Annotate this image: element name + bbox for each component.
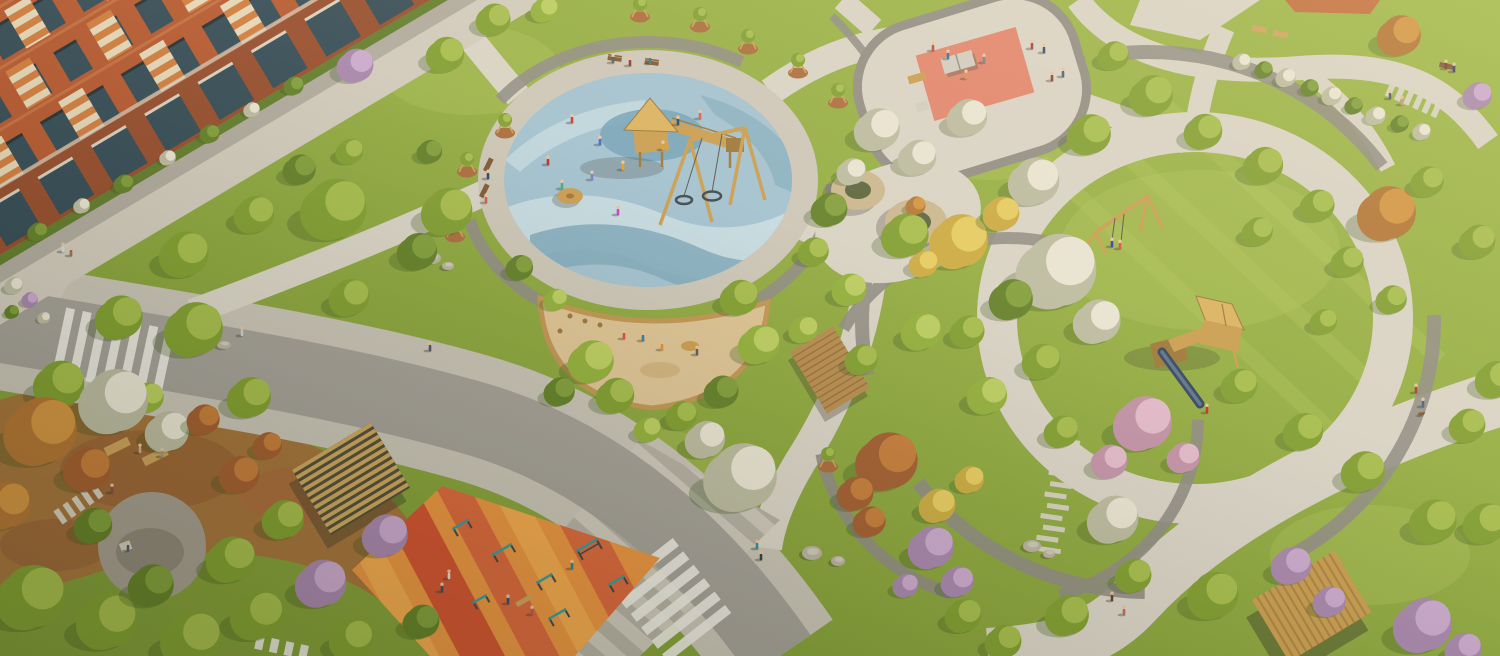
person-body (965, 73, 968, 80)
tree-canopy-highlight (1415, 600, 1450, 635)
tree-canopy-highlight (1397, 116, 1408, 127)
tree-canopy-highlight (999, 626, 1021, 648)
person-body (756, 543, 759, 550)
tree-canopy-highlight (1036, 345, 1059, 368)
person-body (1422, 401, 1425, 408)
tree-canopy-highlight (734, 281, 757, 304)
tree-canopy-highlight (1298, 414, 1322, 438)
person-head (1030, 40, 1033, 43)
person-head (1414, 384, 1417, 387)
mulch-ring (495, 128, 515, 139)
tree-canopy-highlight (1387, 286, 1406, 305)
tree-canopy-highlight (800, 317, 818, 335)
mulch-ring (738, 44, 758, 55)
tree-canopy-highlight (644, 418, 661, 435)
tree-canopy-highlight (1057, 417, 1078, 438)
tree-canopy-highlight (1109, 42, 1128, 61)
person-head (447, 570, 450, 573)
person-body (507, 598, 510, 605)
person-head (126, 542, 129, 545)
person-head (695, 346, 698, 349)
tree-canopy-highlight (857, 346, 877, 366)
person-head (641, 332, 644, 335)
person-body (161, 451, 164, 458)
person-body (62, 246, 65, 253)
person-body (571, 563, 574, 570)
person-head (622, 330, 625, 333)
tree-canopy-highlight (1373, 107, 1385, 119)
person-head (1122, 606, 1125, 609)
person-body (612, 57, 615, 64)
mulch-ring (818, 462, 838, 473)
tree-canopy-highlight (1179, 444, 1199, 464)
person-body (649, 58, 652, 65)
tree-canopy-highlight (113, 297, 142, 326)
tree-canopy-highlight (851, 478, 873, 500)
person-body (1031, 43, 1034, 50)
person-head (946, 50, 949, 53)
tree-canopy-highlight (250, 103, 260, 113)
young-canopy-highlight (746, 30, 754, 38)
tree-canopy-highlight (953, 568, 973, 588)
person-head (570, 560, 573, 563)
tree-canopy-highlight (178, 233, 208, 263)
mulch-ring (457, 167, 477, 178)
person-head (484, 194, 487, 197)
tree-canopy-highlight (1258, 148, 1282, 172)
tree-canopy-highlight (42, 312, 50, 320)
person-head (661, 141, 664, 144)
person-head (755, 540, 758, 543)
person-body (139, 447, 142, 454)
tree-canopy-highlight (183, 614, 219, 650)
person-head (546, 156, 549, 159)
person-body (1062, 71, 1065, 78)
person-head (611, 54, 614, 57)
tree-canopy-highlight (809, 238, 828, 257)
boulder-highlight (445, 263, 452, 267)
boulder-highlight (1046, 551, 1053, 555)
person-body (429, 345, 432, 352)
person-body (1123, 609, 1126, 616)
tree-canopy-highlight (1062, 597, 1088, 623)
person-head (486, 170, 489, 173)
tree-canopy-highlight (913, 197, 925, 209)
person-body (622, 164, 625, 171)
person-body (617, 209, 620, 216)
tree-canopy-highlight (291, 77, 303, 89)
person-body (70, 250, 73, 257)
tree-canopy-highlight (80, 199, 90, 209)
person-body (1119, 243, 1122, 250)
tree-canopy-highlight (1105, 446, 1127, 468)
tree-canopy-highlight (22, 568, 64, 610)
person-body (642, 335, 645, 342)
tree-canopy-highlight (11, 278, 22, 289)
person-head (590, 171, 593, 174)
tree-canopy-highlight (754, 327, 779, 352)
person-head (1110, 592, 1113, 595)
tree-canopy-highlight (1313, 191, 1334, 212)
mulch-ring (828, 98, 848, 109)
tree-canopy-highlight (552, 290, 566, 304)
person-body (571, 117, 574, 124)
person-head (570, 114, 573, 117)
person-body (599, 139, 602, 146)
person-head (759, 551, 762, 554)
tree-canopy-highlight (489, 5, 510, 26)
person-head (1050, 72, 1053, 75)
tree-canopy-highlight (962, 100, 986, 124)
tree-canopy-highlight (1320, 310, 1337, 327)
tree-canopy-highlight (412, 234, 436, 258)
tree-canopy-highlight (186, 304, 221, 339)
tree-canopy-highlight (249, 197, 273, 221)
tree-canopy-highlight (346, 621, 372, 647)
tree-canopy-highlight (966, 467, 984, 485)
tree-canopy-highlight (1135, 398, 1170, 433)
tree-canopy-highlight (1046, 237, 1094, 285)
person-head (931, 42, 934, 45)
person-body (1051, 75, 1054, 82)
person-head (1421, 398, 1424, 401)
mulch-ring (788, 68, 808, 79)
tree-canopy-highlight (264, 433, 282, 451)
tree-canopy-highlight (379, 516, 407, 544)
person-body (591, 174, 594, 181)
tree-canopy-highlight (1325, 588, 1345, 608)
person-head (110, 484, 113, 487)
person-head (440, 583, 443, 586)
tree-canopy-highlight (225, 538, 255, 568)
young-canopy-highlight (836, 84, 844, 92)
person-body (1415, 387, 1418, 394)
tree-canopy-highlight (1146, 77, 1172, 103)
building-fragment-top-edge (1285, 0, 1380, 14)
person-body (1389, 93, 1392, 100)
park-aerial-render: Aerial rendering of a residential courty… (0, 0, 1500, 656)
tree-canopy-highlight (31, 400, 75, 444)
tree-canopy-highlight (899, 215, 928, 244)
mulch-ring (630, 12, 650, 23)
tree-canopy-highlight (555, 378, 574, 397)
tree-canopy-highlight (105, 372, 147, 414)
tree-canopy-highlight (1239, 54, 1250, 65)
tree-canopy-highlight (963, 317, 984, 338)
mulch-ring (690, 22, 710, 33)
person-head (1452, 62, 1455, 65)
person-body (932, 45, 935, 52)
young-canopy-highlight (826, 448, 834, 456)
person-head (648, 55, 651, 58)
tree-canopy-highlight (1091, 301, 1120, 330)
tree-canopy-highlight (234, 457, 258, 481)
person-head (616, 206, 619, 209)
person-head (530, 606, 533, 609)
tree-canopy-highlight (35, 223, 47, 235)
tree-canopy-highlight (1261, 62, 1272, 73)
tree-canopy-highlight (278, 502, 303, 527)
tree-canopy-highlight (982, 378, 1006, 402)
person-head (982, 54, 985, 57)
tree-canopy-highlight (1283, 69, 1295, 81)
tree-canopy-highlight (610, 379, 633, 402)
person-body (441, 586, 444, 593)
person-head (598, 136, 601, 139)
person-body (127, 545, 130, 552)
tree-canopy-highlight (346, 140, 363, 157)
person-body (1445, 63, 1448, 70)
person-body (241, 330, 244, 337)
person-head (676, 116, 679, 119)
tree-canopy-highlight (717, 377, 738, 398)
person-body (561, 183, 564, 190)
tree-canopy-highlight (344, 280, 368, 304)
tree-canopy-highlight (731, 446, 775, 490)
person-head (160, 448, 163, 451)
person-body (661, 344, 664, 351)
tree-canopy-highlight (250, 593, 282, 625)
person-body (662, 144, 665, 151)
person-body (623, 333, 626, 340)
person-body (531, 609, 534, 616)
tree-canopy-highlight (199, 406, 219, 426)
tree-canopy-highlight (1329, 87, 1341, 99)
boulder-highlight (835, 557, 843, 562)
person-head (1388, 90, 1391, 93)
tree-canopy-highlight (121, 175, 133, 187)
tree-canopy-highlight (677, 402, 696, 421)
person-head (61, 243, 64, 246)
person-head (1400, 96, 1403, 99)
person-body (677, 119, 680, 126)
person-body (1111, 241, 1114, 248)
person-head (428, 342, 431, 345)
tree-canopy-highlight (902, 575, 917, 590)
person-body (1111, 595, 1114, 602)
person-body (1206, 407, 1209, 414)
person-head (1444, 60, 1447, 63)
person-head (1042, 44, 1045, 47)
tree-canopy-highlight (1423, 168, 1443, 188)
tree-canopy-highlight (52, 363, 83, 394)
tree-canopy-highlight (1027, 160, 1058, 191)
young-canopy-highlight (796, 54, 804, 62)
person-body (696, 349, 699, 356)
boulder-highlight (1028, 542, 1039, 548)
tree-canopy-highlight (1006, 281, 1032, 307)
tree-canopy-highlight (88, 509, 111, 532)
person-head (660, 341, 663, 344)
young-canopy-highlight (503, 114, 511, 122)
tree-canopy-highlight (1474, 83, 1492, 101)
tree-canopy-highlight (1307, 80, 1318, 91)
tree-canopy-highlight (1427, 501, 1456, 530)
person-body (448, 573, 451, 580)
person-head (628, 57, 631, 60)
tree-canopy-highlight (1206, 574, 1237, 605)
tree-canopy-highlight (207, 125, 219, 137)
tree-canopy-highlight (871, 110, 899, 138)
tree-canopy-highlight (325, 181, 365, 221)
tree-canopy-highlight (1351, 98, 1362, 109)
tree-canopy-highlight (244, 379, 270, 405)
tree-canopy-highlight (700, 422, 724, 446)
person-body (699, 113, 702, 120)
person-body (1043, 47, 1046, 54)
tree-canopy-highlight (295, 156, 315, 176)
person-head (1110, 238, 1113, 241)
tree-canopy-highlight (314, 562, 345, 593)
person-body (485, 197, 488, 204)
person-head (621, 161, 624, 164)
tree-canopy-highlight (933, 490, 955, 512)
tree-canopy-highlight (912, 141, 935, 164)
person-body (547, 159, 550, 166)
tree-canopy-highlight (440, 38, 463, 61)
boulder-highlight (221, 342, 229, 346)
person-body (947, 53, 950, 60)
person-head (1118, 240, 1121, 243)
person-body (111, 487, 114, 494)
tree-canopy-highlight (516, 256, 533, 273)
tree-canopy-highlight (351, 50, 373, 72)
tree-canopy-highlight (417, 606, 439, 628)
tree-canopy-highlight (1394, 17, 1420, 43)
tree-canopy-highlight (879, 435, 916, 472)
person-head (1205, 404, 1208, 407)
tree-canopy-highlight (1235, 370, 1257, 392)
person-head (698, 110, 701, 113)
tree-canopy-highlight (1358, 453, 1384, 479)
tree-canopy-highlight (1198, 115, 1221, 138)
tree-canopy-highlight (1419, 124, 1430, 135)
tree-canopy-highlight (1129, 560, 1151, 582)
tree-canopy-highlight (959, 600, 981, 622)
young-canopy-highlight (698, 8, 706, 16)
tree-canopy-highlight (920, 251, 938, 269)
person-head (964, 70, 967, 73)
tree-canopy-highlight (825, 194, 847, 216)
tree-canopy-highlight (1463, 410, 1485, 432)
tree-canopy-highlight (925, 528, 953, 556)
tree-canopy-highlight (426, 141, 441, 156)
tree-canopy-highlight (28, 293, 38, 303)
young-canopy-highlight (465, 153, 473, 161)
tree-canopy-highlight (865, 508, 885, 528)
tree-canopy-highlight (145, 566, 173, 594)
person-body (1453, 66, 1456, 73)
tree-canopy-highlight (1106, 498, 1137, 529)
tree-canopy-highlight (848, 159, 866, 177)
tree-canopy-highlight (440, 190, 471, 221)
tree-canopy-highlight (166, 151, 176, 161)
tree-canopy-highlight (1343, 248, 1363, 268)
tree-canopy-highlight (81, 449, 110, 478)
tree-canopy-highlight (585, 342, 613, 370)
person-body (629, 60, 632, 67)
person-body (487, 173, 490, 180)
person-head (138, 444, 141, 447)
tree-canopy-highlight (916, 314, 940, 338)
person-body (983, 57, 986, 64)
tree-canopy-highlight (845, 275, 866, 296)
person-body (760, 554, 763, 561)
person-head (69, 247, 72, 250)
dog-head (1423, 412, 1425, 414)
person-head (560, 180, 563, 183)
tree-canopy-highlight (10, 306, 19, 315)
person-head (506, 595, 509, 598)
tree-canopy-highlight (1286, 548, 1310, 572)
tree-canopy-highlight (1253, 218, 1272, 237)
person-head (1061, 68, 1064, 71)
boulder-highlight (807, 548, 819, 555)
tree-canopy-highlight (1084, 116, 1110, 142)
tree-canopy-highlight (1473, 226, 1495, 248)
tree-canopy-highlight (1459, 634, 1481, 656)
tree-canopy-highlight (997, 198, 1019, 220)
person-body (1401, 99, 1404, 106)
person-head (240, 327, 243, 330)
